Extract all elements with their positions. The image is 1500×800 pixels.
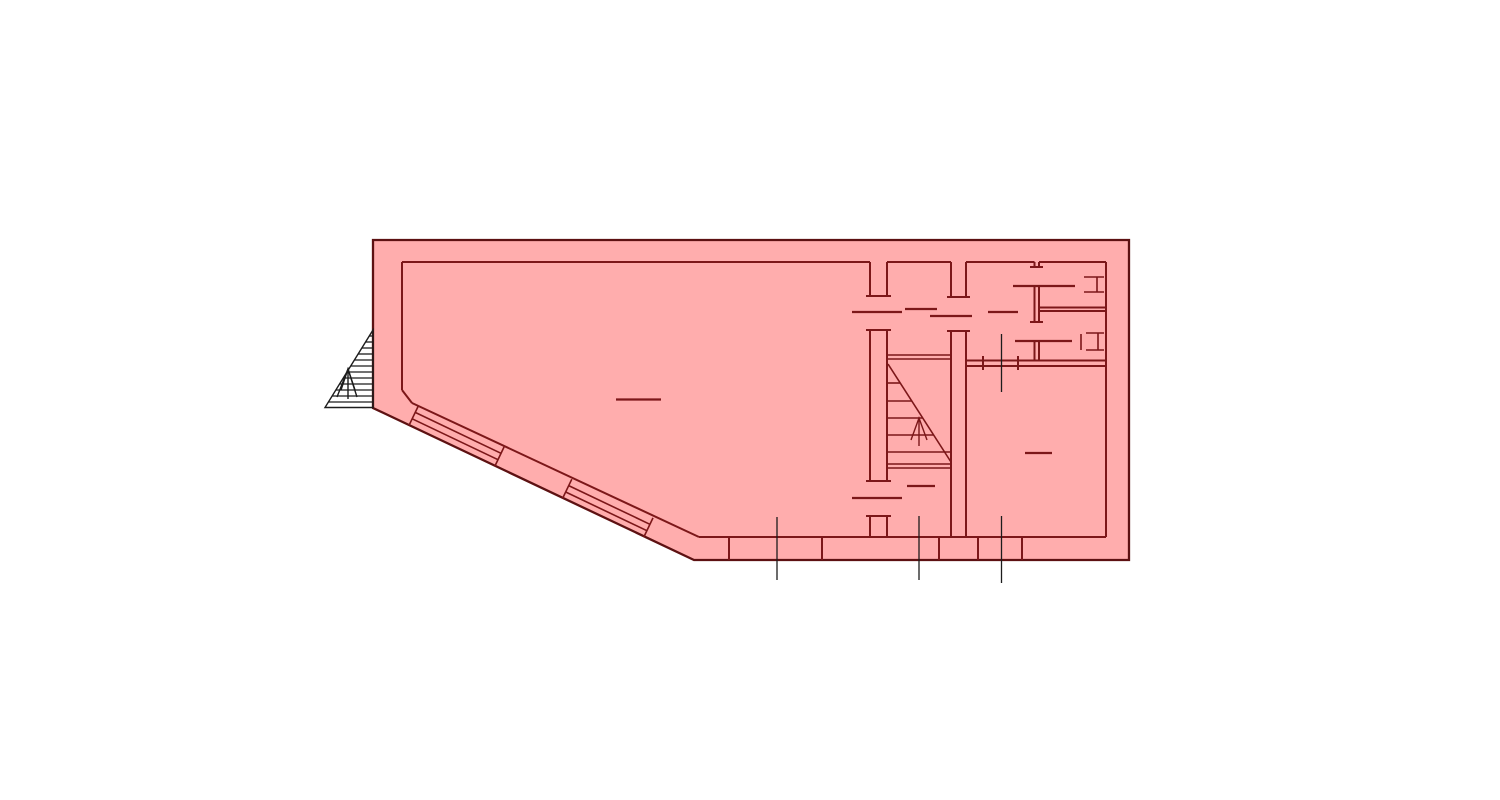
floor-plan-page — [0, 0, 1500, 800]
floor-plan-canvas — [0, 0, 1500, 800]
building-outline — [373, 240, 1129, 560]
